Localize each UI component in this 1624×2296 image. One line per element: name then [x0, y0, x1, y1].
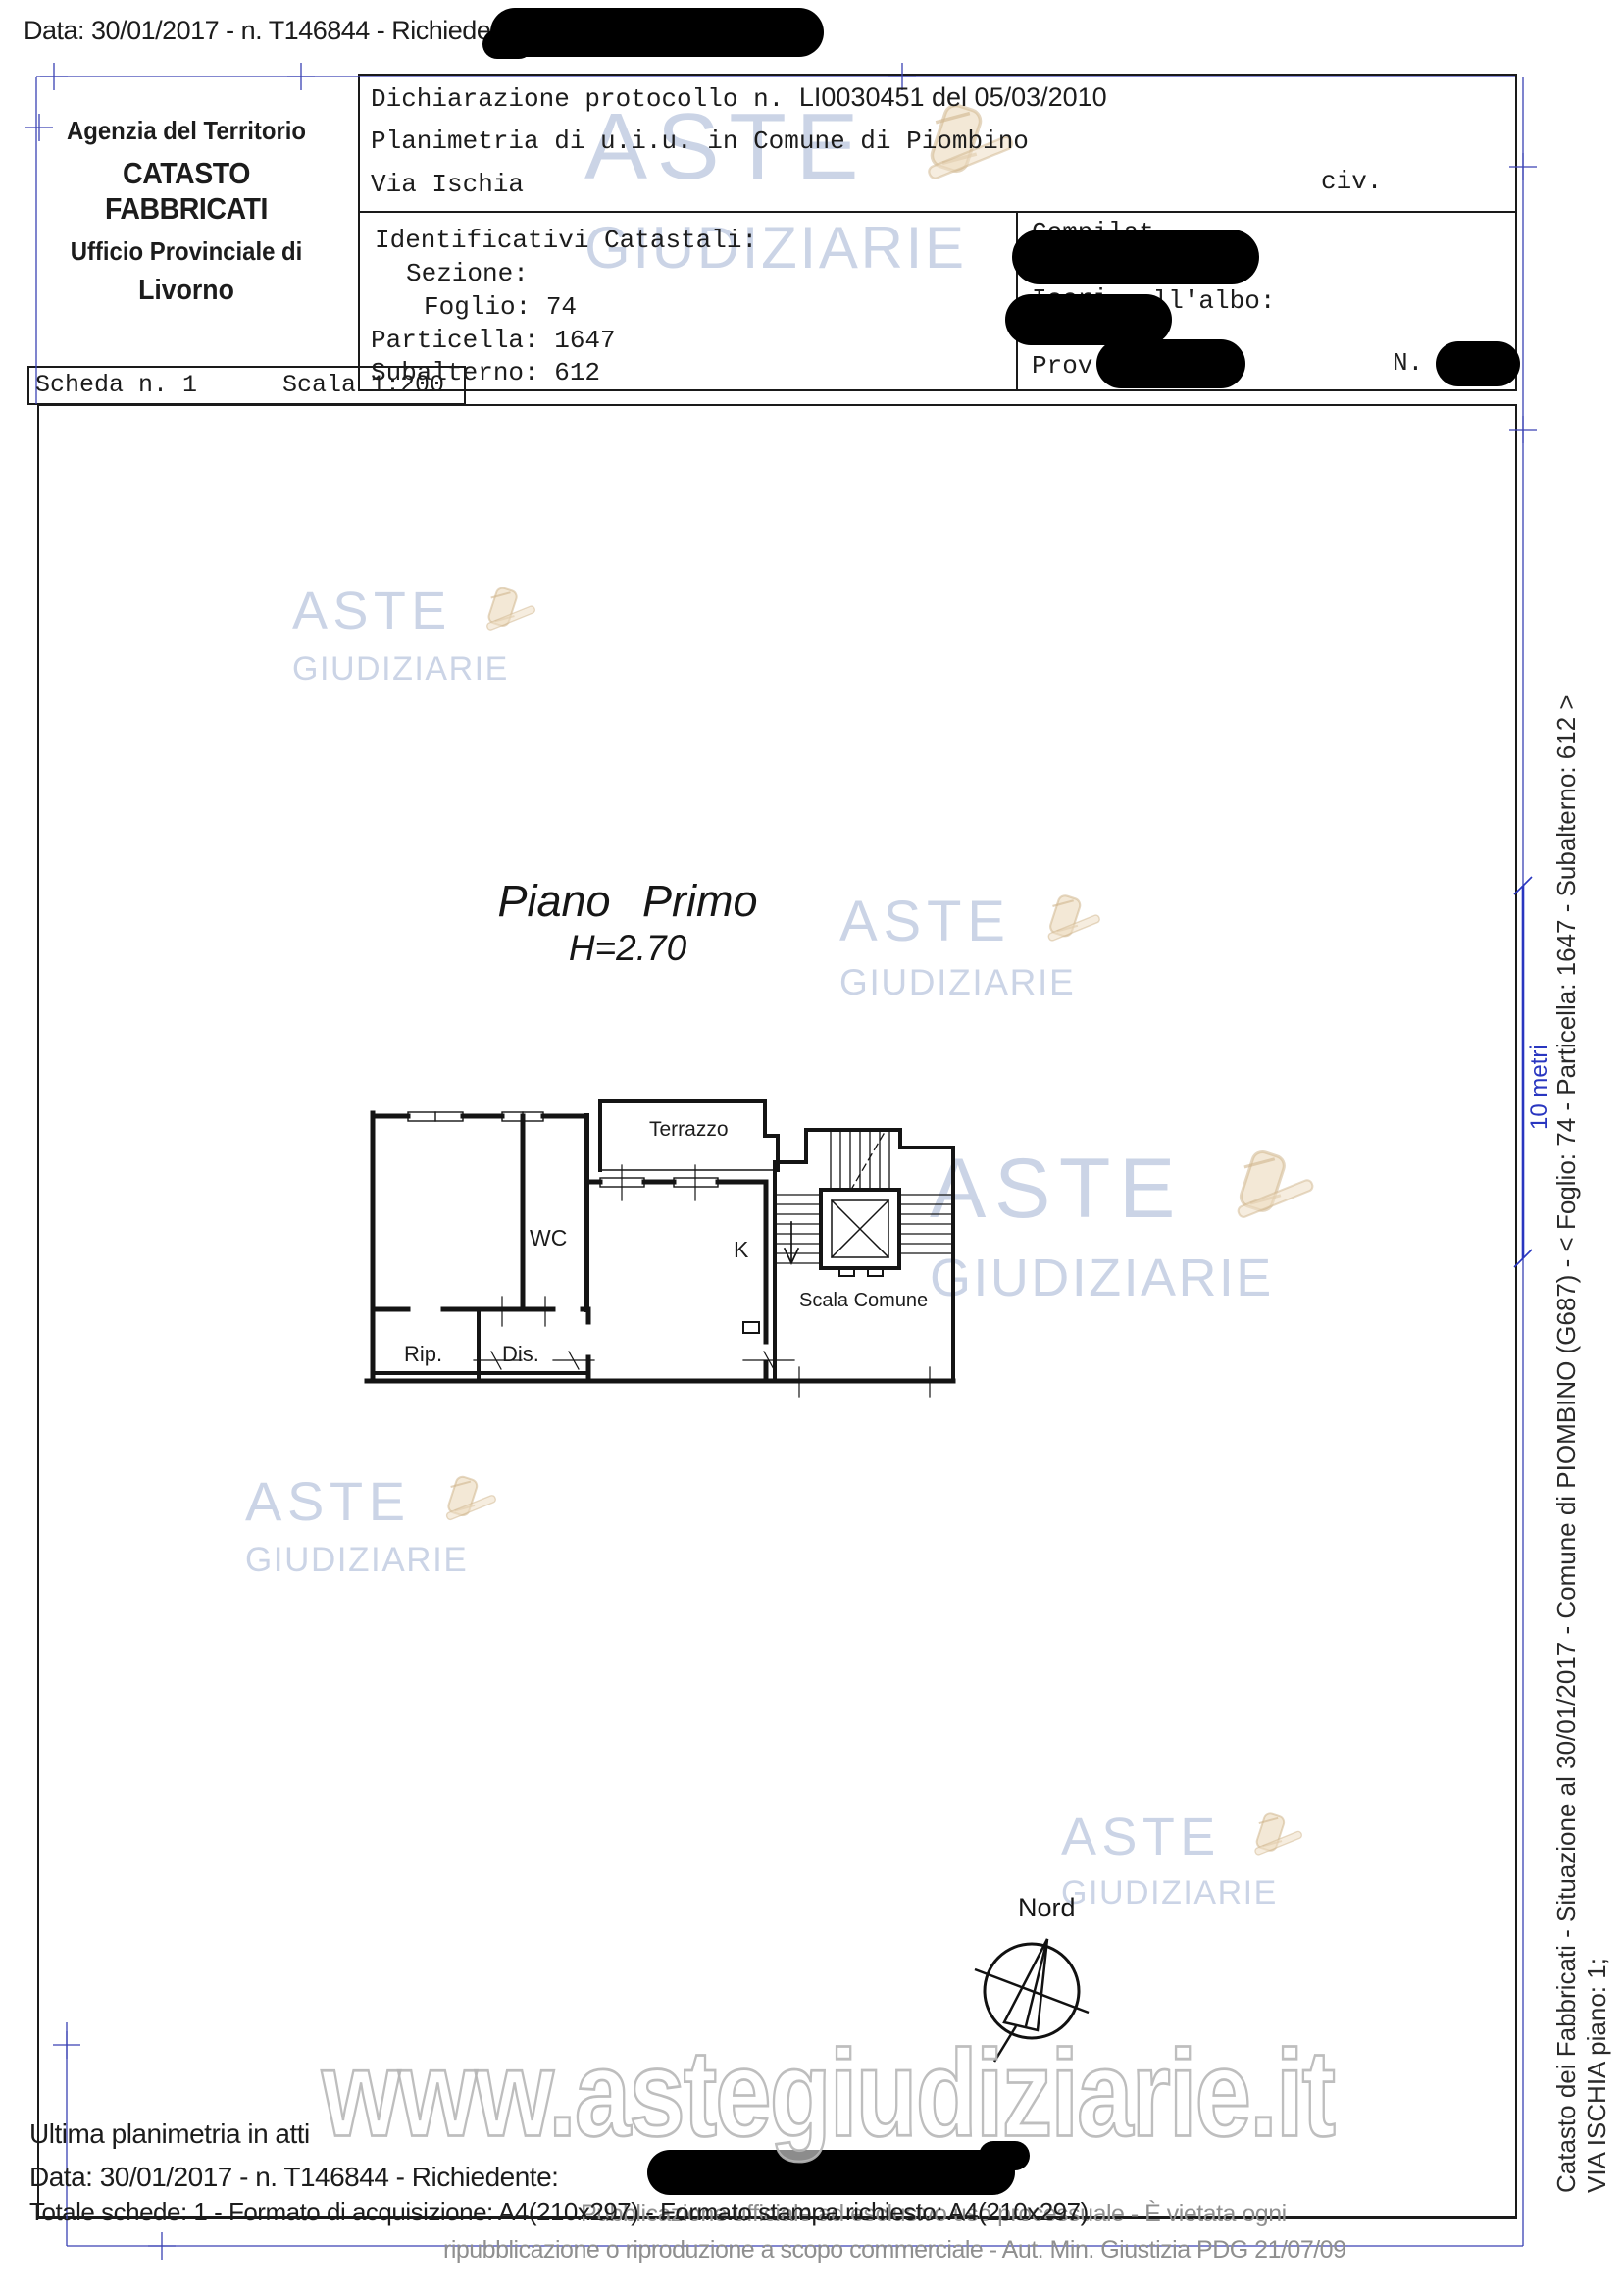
civ-label: civ.	[1321, 167, 1382, 196]
redaction-compilato	[1012, 230, 1259, 284]
agency-line: CATASTO FABBRICATI	[51, 156, 322, 227]
planimetria-row: Planimetria di u.i.u. in Comune di Piomb…	[371, 127, 1029, 156]
side-caption: Catasto dei Fabbricati - Situazione al 3…	[1551, 555, 1612, 2193]
scalebar-label: 10 metri	[1526, 1012, 1553, 1130]
footer-totale-line: Totale schede: 1 - Formato di acquisizio…	[29, 2197, 1089, 2227]
disclaimer-line2: ripubblicazione o riproduzione a scopo c…	[443, 2236, 1345, 2265]
plan-title: Piano Primo	[412, 876, 843, 927]
street-row: Via Ischia	[371, 170, 524, 199]
request-line-top: Data: 30/01/2017 - n. T146844 - Richiede…	[24, 16, 512, 46]
footer-data-line: Data: 30/01/2017 - n. T146844 - Richiede…	[29, 2162, 558, 2193]
redaction-iscritto	[1005, 294, 1172, 345]
protocol-label: Dichiarazione protocollo n.	[371, 84, 784, 114]
particella-row: Particella: 1647	[371, 326, 616, 355]
redaction-top	[490, 8, 824, 57]
protocol-row: Dichiarazione protocollo n. LI0030451 de…	[371, 82, 1107, 114]
protocol-value: LI0030451 del 05/03/2010	[799, 82, 1107, 112]
plan-ceiling-height: H=2.70	[412, 928, 843, 969]
scanned-cadastral-document: ASTE GIUDIZIARIE ASTE GIUDIZIARIE ASTE G…	[0, 0, 1624, 2296]
north-label: Nord	[1018, 1893, 1076, 1923]
redaction-prov	[1096, 339, 1245, 388]
ident-title: Identificativi Catastali:	[375, 226, 757, 255]
side-caption-line2: VIA ISCHIA piano: 1;	[1582, 555, 1612, 2193]
registration-marks	[0, 0, 1624, 2296]
scala-label: Scala 1:200	[282, 371, 444, 399]
sezione-row: Sezione:	[406, 259, 529, 288]
foglio-row: Foglio: 74	[424, 292, 577, 322]
agency-line: Ufficio Provinciale di	[51, 236, 322, 267]
redaction-n	[1436, 341, 1520, 386]
footer-ultima: Ultima planimetria in atti	[29, 2118, 310, 2150]
agency-header: Agenzia del Territorio CATASTO FABBRICAT…	[51, 116, 322, 307]
n-label: N.	[1393, 348, 1423, 378]
redaction-top	[482, 29, 533, 59]
scheda-label: Scheda n. 1	[35, 371, 197, 399]
agency-line: Agenzia del Territorio	[51, 116, 322, 146]
side-caption-line1: Catasto dei Fabbricati - Situazione al 3…	[1551, 555, 1582, 2193]
agency-line: Livorno	[51, 275, 322, 307]
watermark-url: www.astegiudiziarie.it	[322, 2022, 1334, 2164]
